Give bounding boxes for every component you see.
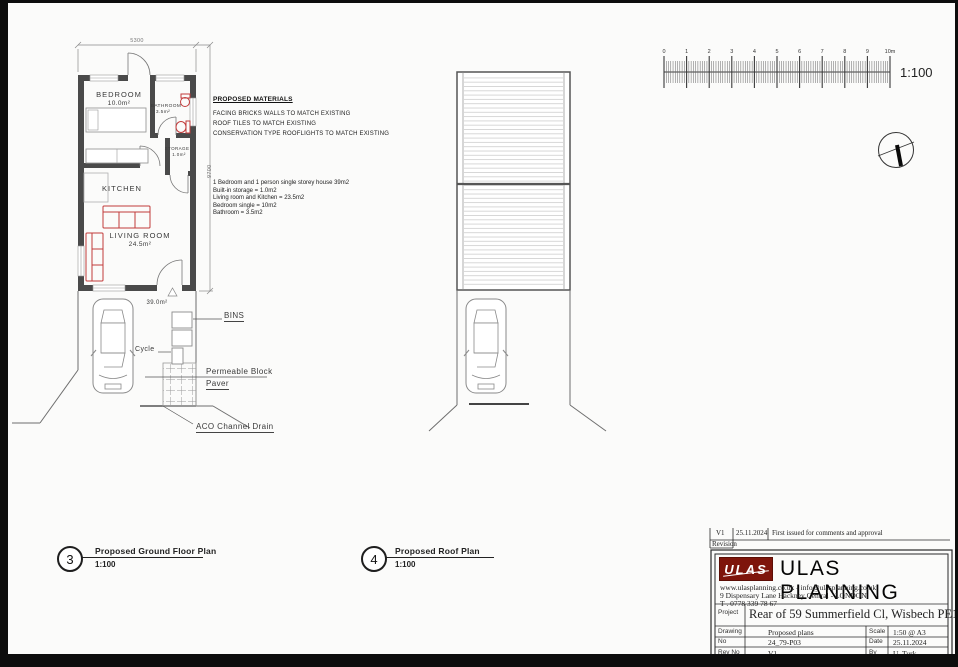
kitchen-label: KITCHEN [102,184,142,193]
caption-4-circle: 4 [361,546,387,572]
caption-3-title: Proposed Ground Floor Plan [95,546,216,556]
door-swings [128,53,188,285]
bathroom-area: 3.5m² [156,110,170,115]
car-top-view-ground [91,299,135,393]
cycle-label: Cycle [135,346,155,353]
dimension-width-label: 5300 [130,38,143,44]
materials-title: PROPOSED MATERIALS [213,96,389,103]
schedule-line: Bathroom = 3.5m2 [213,210,349,218]
bins-cycle [172,312,192,364]
scale-label: Scale [869,628,885,635]
revision-date: 25.11.2024 [736,529,767,537]
date-value: 25.11.2024 [893,638,926,647]
roof-plan [457,72,570,290]
area-schedule: 1 Bedroom and 1 person single storey hou… [213,180,349,218]
no-label: No [718,638,726,645]
garden-area-label: 39.0m² [146,300,167,306]
caption-4-number: 4 [370,552,377,567]
scale-bar-ticks [664,56,890,88]
ulas-logo: ULAS [720,558,772,580]
drain-label: ACO Channel Drain [196,422,274,433]
schedule-line: Built-in storage = 1.0m2 [213,188,349,196]
schedule-line: Bedroom single = 10m2 [213,203,349,211]
scale-value: 1:50 @ A3 [893,628,926,637]
caption-3-scale: 1:100 [95,560,115,569]
bathroom-label: BATHROOM [151,104,182,109]
caption-4-scale: 1:100 [395,560,415,569]
caption-3-circle: 3 [57,546,83,572]
roof-driveway [429,290,606,431]
drawing-value: Proposed plans [768,628,814,637]
schedule-line: Living room and Kitchen = 23.5m2 [213,195,349,203]
storage-area: 1.0m² [172,152,186,157]
project-label: Project [718,609,738,616]
page-edge-bottom [0,654,958,667]
car-top-view-roof [464,299,508,393]
revision-note: First issued for comments and approval [772,529,883,537]
living-room-area: 24.5m² [129,241,152,248]
drawing-sheet: BEDROOM 10.0m² BATHROOM 3.5m² STORAGE 1.… [0,0,958,667]
bins-label: BINS [224,311,244,322]
living-room-label: LIVING ROOM [109,231,170,240]
materials-item: ROOF TILES TO MATCH EXISTING [213,121,389,127]
paver-label-line1: Permeable Block [206,367,272,376]
drawing-label: Drawing [718,628,742,635]
page-edge-top [0,0,958,3]
paver-hatch-area [163,363,196,406]
scale-ratio-label: 1:100 [900,65,933,80]
revision-rev: V1 [716,529,725,537]
revision-row-label: Revision [712,540,737,548]
storage-label: STORAGE [165,146,190,151]
materials-block: PROPOSED MATERIALS FACING BRICKS WALLS T… [213,96,389,137]
date-label: Date [869,638,883,645]
paver-label-line2: Paver [206,379,229,390]
project-value: Rear of 59 Summerfield Cl, Wisbech PE13 … [749,607,958,622]
schedule-line: 1 Bedroom and 1 person single storey hou… [213,180,349,188]
caption-3-number: 3 [66,552,73,567]
materials-item: CONSERVATION TYPE ROOFLIGHTS TO MATCH EX… [213,131,389,137]
north-arrow [878,133,914,168]
page-edge-left [0,0,8,667]
caption-4-title: Proposed Roof Plan [395,546,480,556]
bedroom-label: BEDROOM [96,90,142,99]
no-value: 24_79-P03 [768,638,801,647]
dimension-height-label: 9700 [207,165,213,178]
materials-item: FACING BRICKS WALLS TO MATCH EXISTING [213,111,389,117]
bedroom-area: 10.0m² [108,100,131,107]
